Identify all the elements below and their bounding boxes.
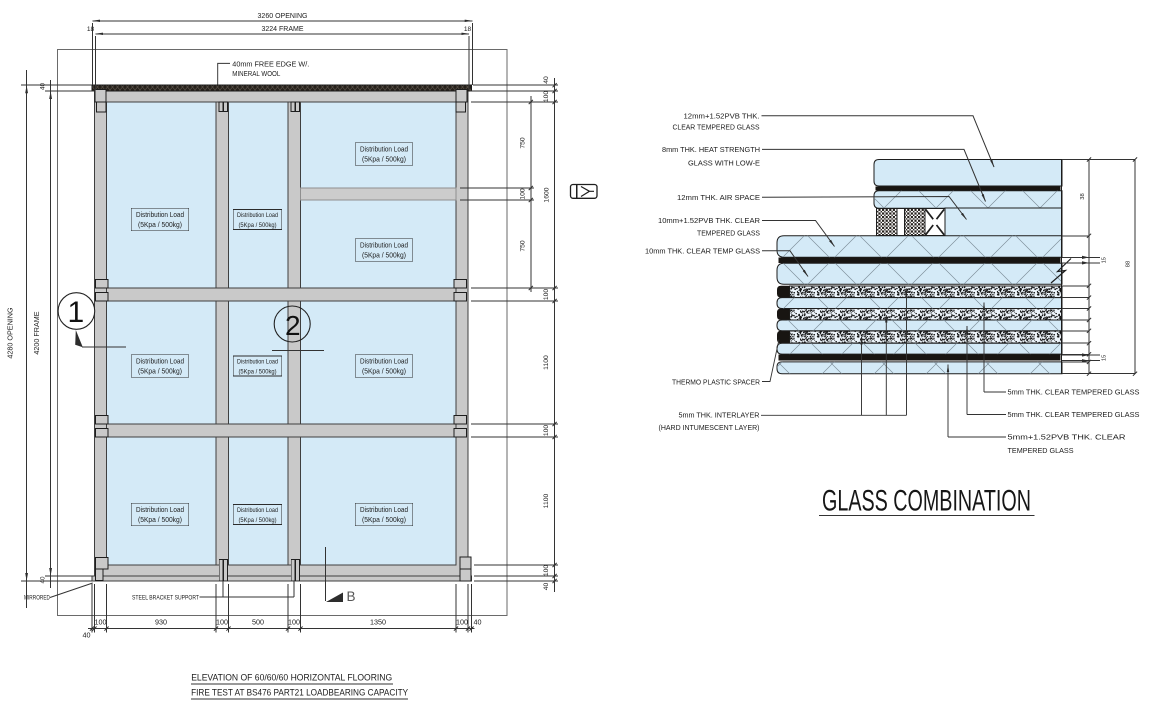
- svg-text:B: B: [346, 589, 355, 604]
- svg-text:40mm FREE EDGE W/.: 40mm FREE EDGE W/.: [232, 59, 309, 68]
- svg-text:Distribution Load: Distribution Load: [237, 358, 278, 365]
- svg-text:(5Kpa / 500kg): (5Kpa / 500kg): [362, 516, 406, 524]
- svg-text:40: 40: [543, 76, 550, 84]
- svg-text:2: 2: [285, 310, 301, 341]
- svg-text:ELEVATION OF 60/60/60 HORIZONT: ELEVATION OF 60/60/60 HORIZONTAL FLOORIN…: [191, 672, 392, 683]
- svg-text:100: 100: [95, 618, 107, 627]
- svg-text:Distribution Load: Distribution Load: [136, 357, 184, 365]
- svg-text:Distribution Load: Distribution Load: [136, 211, 184, 219]
- svg-text:8mm THK. HEAT STRENGTH: 8mm THK. HEAT STRENGTH: [662, 145, 760, 154]
- svg-text:100: 100: [456, 618, 468, 627]
- svg-text:1350: 1350: [370, 618, 386, 627]
- svg-text:100: 100: [543, 289, 550, 301]
- svg-text:1: 1: [67, 296, 84, 329]
- svg-text:MIRRORED: MIRRORED: [24, 596, 51, 602]
- svg-text:500: 500: [252, 618, 264, 627]
- svg-text:18: 18: [464, 26, 472, 33]
- svg-text:1600: 1600: [544, 187, 551, 202]
- svg-text:(HARD INTUMESCENT LAYER): (HARD INTUMESCENT LAYER): [659, 423, 760, 432]
- svg-text:Distribution Load: Distribution Load: [360, 357, 408, 365]
- svg-text:GLASS WITH LOW-E: GLASS WITH LOW-E: [688, 159, 760, 168]
- svg-text:5mm+1.52PVB THK. CLEAR: 5mm+1.52PVB THK. CLEAR: [1008, 433, 1126, 442]
- svg-text:10mm THK. CLEAR TEMP GLASS: 10mm THK. CLEAR TEMP GLASS: [645, 246, 760, 255]
- svg-text:THERMO PLASTIC SPACER: THERMO PLASTIC SPACER: [672, 377, 760, 386]
- svg-text:Distribution Load: Distribution Load: [237, 507, 278, 514]
- svg-text:1100: 1100: [543, 355, 550, 370]
- svg-text:18: 18: [87, 26, 95, 33]
- svg-text:40: 40: [40, 83, 47, 91]
- svg-text:40: 40: [40, 576, 47, 584]
- svg-text:100: 100: [288, 618, 300, 627]
- svg-text:100: 100: [543, 425, 550, 437]
- svg-text:CLEAR TEMPERED GLASS: CLEAR TEMPERED GLASS: [673, 123, 760, 132]
- svg-text:40: 40: [543, 583, 550, 591]
- svg-text:Distribution Load: Distribution Load: [360, 145, 408, 153]
- svg-text:(5Kpa / 500kg): (5Kpa / 500kg): [362, 252, 406, 260]
- svg-text:15: 15: [1102, 257, 1108, 263]
- svg-text:STEEL BRACKET SUPPORT: STEEL BRACKET SUPPORT: [132, 594, 199, 601]
- svg-text:TEMPERED GLASS: TEMPERED GLASS: [1008, 446, 1074, 455]
- svg-text:5mm THK. INTERLAYER: 5mm THK. INTERLAYER: [679, 411, 760, 420]
- svg-text:(5Kpa / 500kg): (5Kpa / 500kg): [239, 369, 277, 376]
- svg-text:1100: 1100: [543, 493, 550, 508]
- svg-text:88: 88: [1126, 261, 1132, 267]
- svg-text:Distribution Load: Distribution Load: [136, 506, 184, 514]
- svg-text:100: 100: [216, 618, 228, 627]
- svg-text:15: 15: [1102, 355, 1108, 361]
- svg-text:Distribution Load: Distribution Load: [237, 212, 278, 219]
- svg-text:100: 100: [520, 188, 527, 200]
- svg-text:4280 OPENING: 4280 OPENING: [6, 307, 15, 359]
- svg-text:Distribution Load: Distribution Load: [360, 241, 408, 249]
- svg-text:10mm+1.52PVB THK. CLEAR: 10mm+1.52PVB THK. CLEAR: [658, 216, 760, 225]
- svg-text:(5Kpa / 500kg): (5Kpa / 500kg): [138, 368, 182, 376]
- svg-text:FIRE TEST AT BS476 PART21 LOAD: FIRE TEST AT BS476 PART21 LOADBEARING CA…: [191, 686, 409, 697]
- svg-text:12mm THK. AIR SPACE: 12mm THK. AIR SPACE: [677, 193, 760, 202]
- svg-text:750: 750: [520, 240, 527, 252]
- svg-text:100: 100: [543, 565, 550, 577]
- svg-text:(5Kpa / 500kg): (5Kpa / 500kg): [138, 221, 182, 229]
- svg-text:(5Kpa / 500kg): (5Kpa / 500kg): [362, 156, 406, 164]
- svg-text:3260 OPENING: 3260 OPENING: [258, 11, 308, 20]
- svg-text:5mm THK. CLEAR TEMPERED GLASS: 5mm THK. CLEAR TEMPERED GLASS: [1008, 410, 1140, 419]
- svg-text:12mm+1.52PVB THK.: 12mm+1.52PVB THK.: [684, 111, 760, 120]
- svg-text:GLASS COMBINATION: GLASS COMBINATION: [822, 485, 1031, 518]
- svg-text:750: 750: [520, 137, 527, 149]
- svg-text:40: 40: [474, 618, 482, 627]
- svg-text:100: 100: [543, 91, 550, 103]
- svg-text:(5Kpa / 500kg): (5Kpa / 500kg): [138, 516, 182, 524]
- svg-text:Distribution Load: Distribution Load: [360, 506, 408, 514]
- svg-text:38: 38: [1080, 193, 1086, 199]
- svg-text:40: 40: [83, 631, 91, 640]
- svg-text:3224 FRAME: 3224 FRAME: [262, 24, 304, 33]
- svg-text:930: 930: [155, 618, 167, 627]
- svg-text:(5Kpa / 500kg): (5Kpa / 500kg): [362, 368, 406, 376]
- svg-text:TEMPERED GLASS: TEMPERED GLASS: [697, 229, 760, 238]
- svg-text:(5Kpa / 500kg): (5Kpa / 500kg): [239, 222, 277, 229]
- svg-text:5mm THK. CLEAR TEMPERED GLASS: 5mm THK. CLEAR TEMPERED GLASS: [1008, 388, 1140, 397]
- svg-text:(5Kpa / 500kg): (5Kpa / 500kg): [239, 517, 277, 524]
- svg-text:4200 FRAME: 4200 FRAME: [32, 311, 41, 354]
- svg-text:MINERAL WOOL: MINERAL WOOL: [232, 69, 280, 78]
